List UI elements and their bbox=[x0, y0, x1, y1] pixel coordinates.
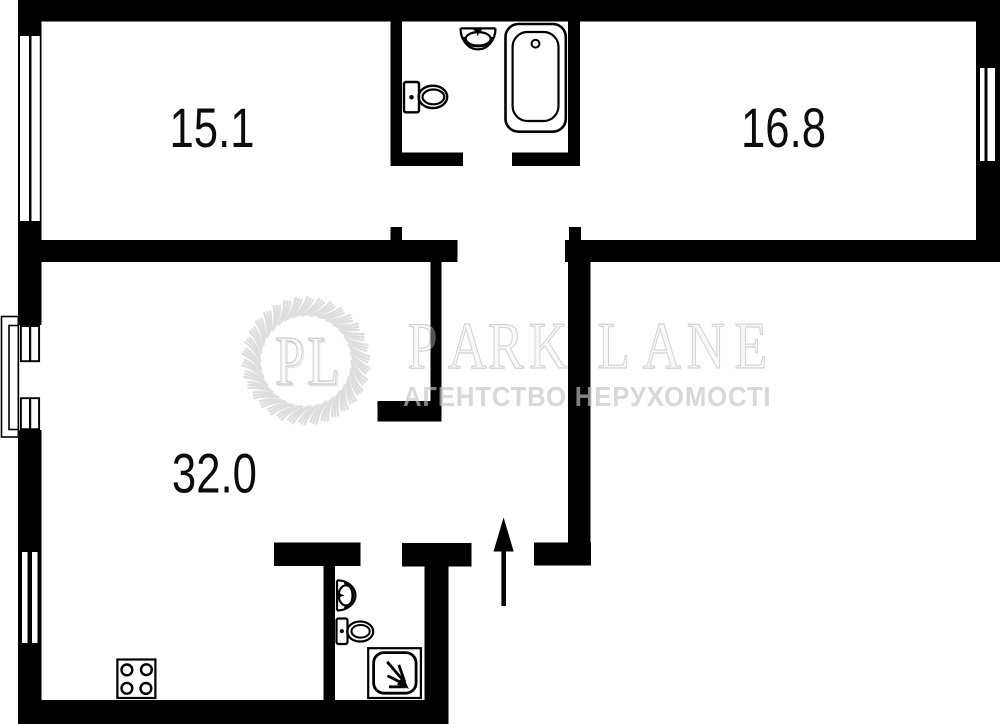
svg-text:15.1: 15.1 bbox=[170, 97, 255, 159]
svg-text:A: A bbox=[448, 309, 487, 383]
svg-text:R: R bbox=[488, 309, 524, 383]
svg-text:E: E bbox=[734, 309, 767, 383]
svg-text:16.8: 16.8 bbox=[741, 97, 826, 159]
svg-text:K: K bbox=[529, 309, 568, 383]
svg-text:32.0: 32.0 bbox=[172, 442, 257, 504]
svg-text:N: N bbox=[687, 309, 726, 383]
svg-text:АГЕНТСТВО НЕРУХОМОСТІ: АГЕНТСТВО НЕРУХОМОСТІ bbox=[403, 381, 771, 412]
svg-text:PL: PL bbox=[275, 323, 342, 400]
svg-text:L: L bbox=[597, 309, 630, 383]
svg-text:P: P bbox=[408, 309, 438, 383]
svg-text:A: A bbox=[642, 309, 681, 383]
